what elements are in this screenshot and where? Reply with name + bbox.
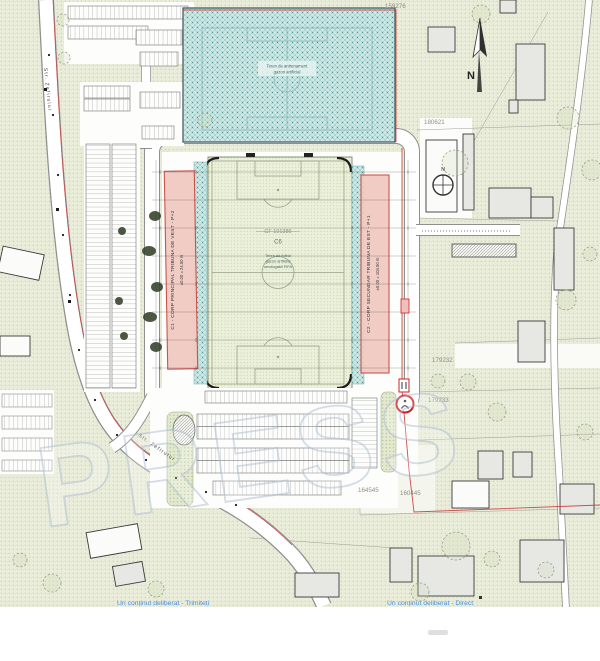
football-field — [205, 153, 352, 393]
footer-link-left[interactable]: Un conținut deliberat - Trimiteți — [117, 600, 210, 607]
parcel-number: 179232 — [432, 357, 453, 364]
training-field-label-line2: gazon artificial — [274, 70, 301, 75]
bottom-smudge — [428, 630, 448, 635]
tree — [538, 562, 554, 578]
field-label-line3: omologabil FIFA — [264, 264, 293, 269]
field-label-line1: Teren de fotbal — [265, 253, 291, 258]
tree — [13, 553, 27, 567]
tree — [583, 247, 597, 261]
training-field-label-line1: Teren de antrenament — [267, 64, 309, 69]
tree — [58, 52, 70, 64]
building — [478, 451, 503, 479]
parking-stalls — [2, 394, 52, 407]
site-plan-drawing: Teren de antrenament gazon artificial — [0, 0, 600, 661]
building — [516, 44, 545, 100]
tree — [411, 583, 429, 601]
tree — [442, 532, 470, 560]
building — [509, 100, 518, 113]
building — [554, 228, 574, 290]
red-marker — [401, 299, 409, 313]
parking-stalls — [140, 92, 180, 108]
cf-number: CF 191386 — [264, 229, 291, 235]
training-field: Teren de antrenament gazon artificial — [183, 8, 395, 142]
parking-stalls — [84, 99, 130, 111]
tree — [472, 5, 490, 23]
tree — [148, 581, 164, 597]
compass-north-label: N — [441, 167, 445, 173]
building — [560, 484, 594, 514]
bottom-margin — [0, 607, 600, 661]
tree — [557, 107, 579, 129]
tree — [198, 113, 212, 127]
parking-stalls — [112, 144, 136, 388]
parking-stalls — [84, 86, 130, 98]
parking-stalls — [136, 30, 182, 45]
tree — [488, 403, 506, 421]
building — [295, 573, 339, 597]
tribune-east-elevation: ±0.00 = 104.50 m — [375, 257, 380, 290]
building — [513, 452, 532, 477]
building — [390, 548, 412, 582]
tree — [484, 551, 500, 567]
building — [489, 188, 531, 218]
alley-east — [416, 230, 520, 231]
parcel-number: 180621 — [424, 119, 445, 126]
field-label-line2: gazon artificial — [266, 259, 291, 264]
parking-stalls — [140, 52, 178, 66]
parcel-number: 159276 — [385, 3, 406, 10]
tree — [442, 150, 468, 176]
tribune-east-label: C2 - CORP SECUNDAR TRIBUNA DE EST - P+1 — [366, 215, 372, 333]
building — [531, 197, 553, 218]
tree — [577, 424, 593, 440]
parking-stalls — [86, 144, 110, 388]
building — [0, 336, 30, 356]
tree — [43, 574, 61, 592]
tribune-west-label: C1 - CORP PRINCIPAL TRIBUNA DE VEST - P+… — [170, 210, 176, 329]
north-label: N — [467, 70, 475, 82]
parking-stalls — [68, 6, 188, 19]
site-plan-viewer: Teren de antrenament gazon artificial — [0, 0, 600, 661]
tree — [57, 14, 69, 26]
footer-link-right[interactable]: Un conținut deliberat - Direct — [387, 600, 473, 607]
footer-marker — [479, 596, 482, 599]
building-code: C6 — [274, 240, 282, 246]
building — [500, 0, 516, 13]
building-hatched — [452, 244, 516, 257]
building — [518, 321, 545, 362]
parking-stalls — [142, 126, 174, 139]
building — [428, 27, 455, 52]
tree — [556, 290, 576, 310]
tree — [460, 374, 476, 390]
tribune-west-elevation: ±0.00 = 24.50 m — [179, 254, 184, 285]
